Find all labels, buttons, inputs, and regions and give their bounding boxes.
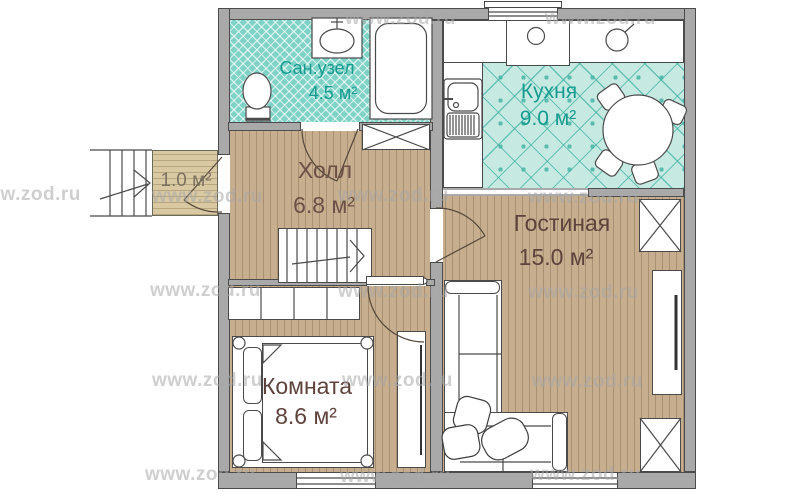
kitchen-stove <box>506 20 570 66</box>
living-room-area: 15.0 м² <box>476 245 636 269</box>
hall-label: Холл <box>255 158 395 182</box>
sofa-armrest <box>552 413 567 471</box>
kitchen-counter-left <box>443 62 483 188</box>
staircase <box>278 228 372 283</box>
bedroom-window <box>296 472 376 489</box>
floor-plan: Сан.узел 4.5 м² Кухня 9.0 м² Холл 6.8 м²… <box>0 0 795 496</box>
living-storage-box <box>640 418 681 472</box>
hall-storage-box <box>362 124 430 150</box>
wall-left <box>218 8 230 472</box>
bathroom-area: 4.5 м² <box>263 84 403 103</box>
tv-stand <box>652 270 682 395</box>
kitchen-window <box>488 7 558 21</box>
bedroom-door-leaf <box>366 276 424 285</box>
bedroom-wardrobe-mirror <box>397 331 426 468</box>
bedroom-label: Комната <box>227 374 387 398</box>
wall-right <box>684 8 696 472</box>
living-storage-box <box>639 199 681 252</box>
bathroom-door-opening <box>300 122 360 131</box>
bedroom-area: 8.6 м² <box>226 404 386 428</box>
bathroom-label: Сан.узел <box>247 59 387 78</box>
sofa-horizontal-section <box>444 412 568 472</box>
wall-top <box>218 8 696 20</box>
living-door-opening <box>430 208 443 263</box>
watermark: www.zod.ru <box>0 184 81 206</box>
wardrobe <box>228 287 360 320</box>
wall-bottom <box>218 472 696 489</box>
hall-area: 6.8 м² <box>254 193 394 217</box>
living-window <box>532 472 618 489</box>
kitchen-area: 9.0 м² <box>478 108 618 130</box>
wall-kitchen-south <box>588 188 684 197</box>
living-room-label: Гостиная <box>482 211 642 235</box>
sofa-armrest <box>445 281 500 294</box>
porch-area: 1.0 м² <box>136 171 236 191</box>
kitchen-label: Кухня <box>479 81 619 103</box>
kitchen-threshold <box>443 188 588 196</box>
